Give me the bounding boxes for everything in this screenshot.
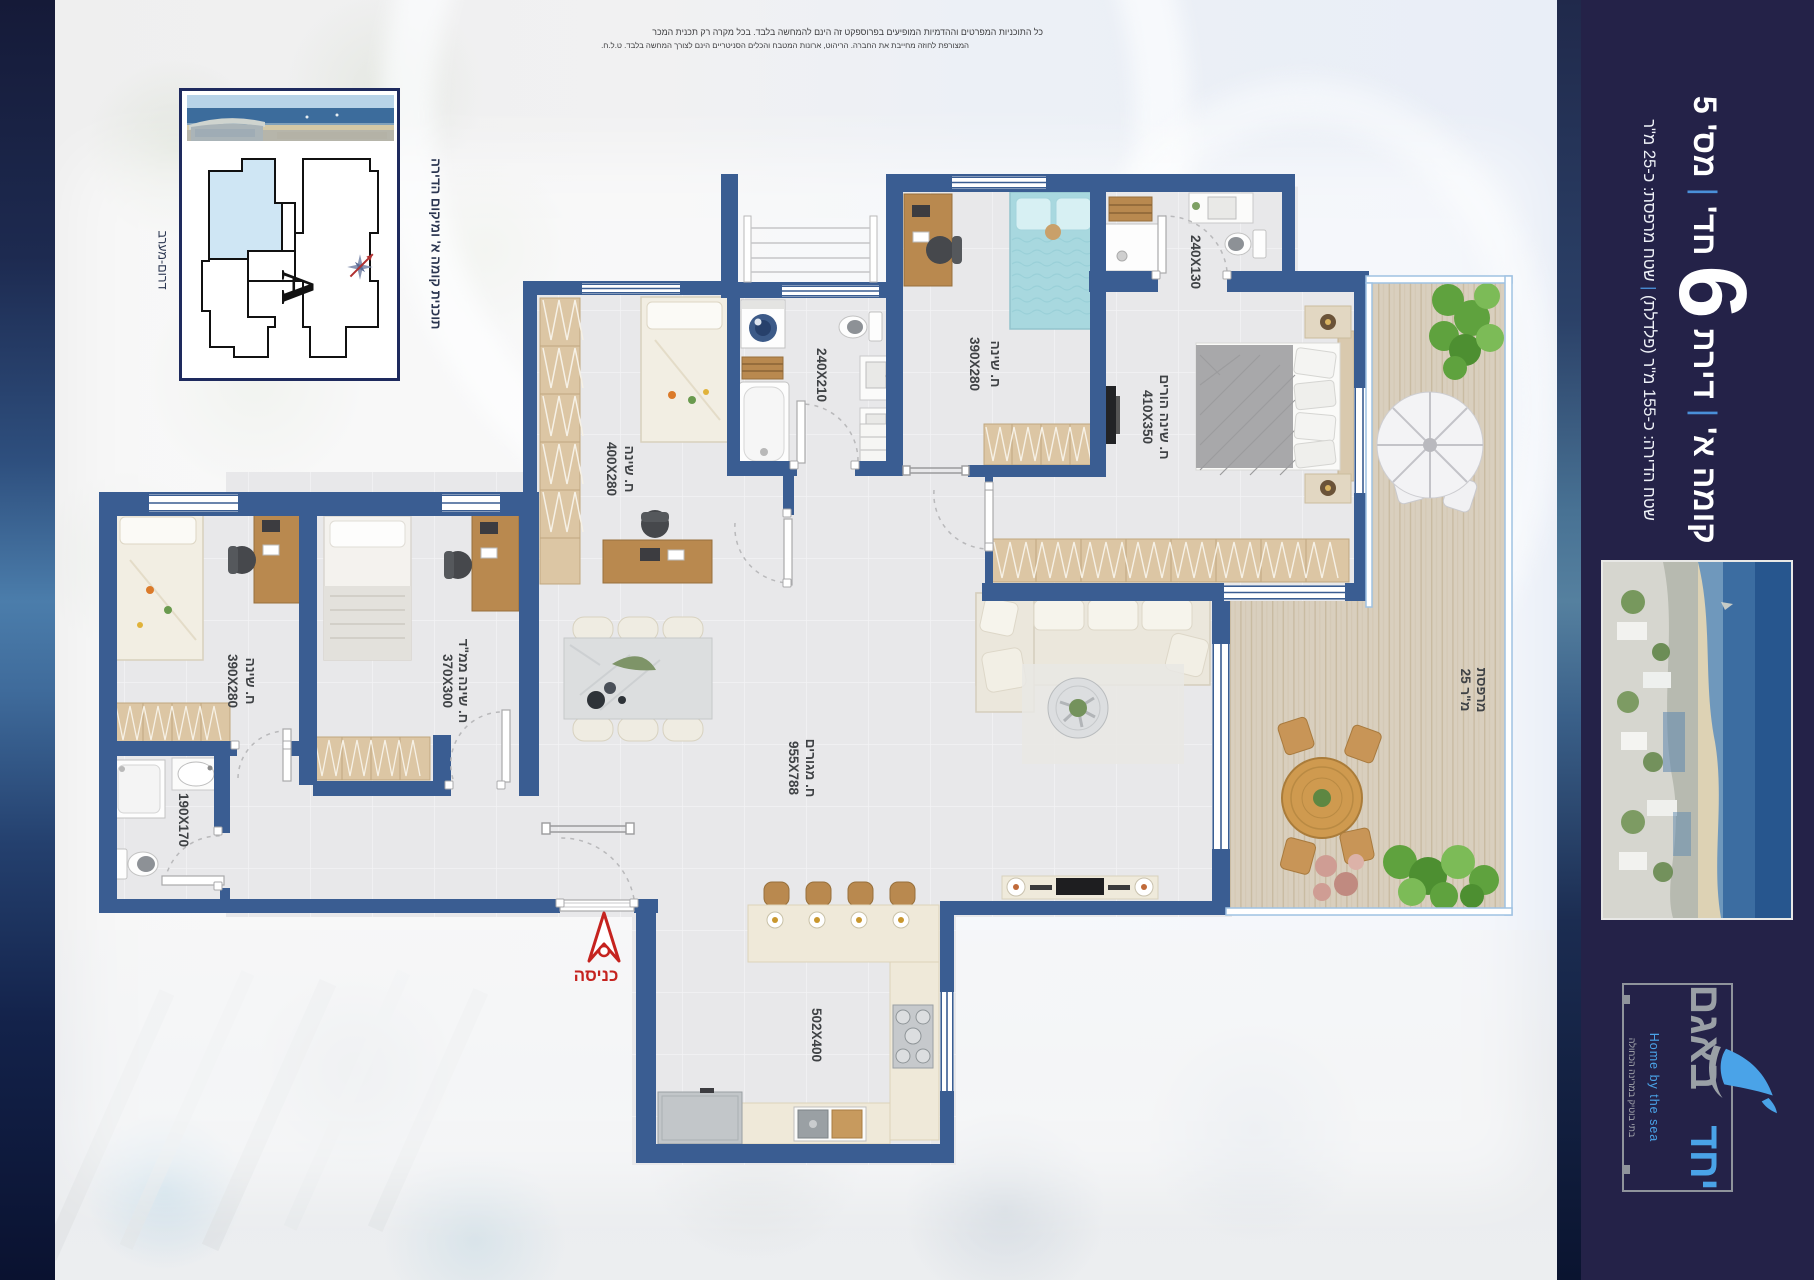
- svg-text:410X350: 410X350: [1140, 390, 1155, 444]
- svg-text:240X130: 240X130: [1188, 235, 1203, 289]
- svg-text:390X280: 390X280: [225, 654, 240, 708]
- svg-text:400X280: 400X280: [604, 442, 619, 496]
- svg-text:ח. שינה: ח. שינה: [243, 658, 258, 705]
- svg-text:ח. שינה ממ"ד: ח. שינה ממ"ד: [456, 639, 471, 723]
- svg-text:190X170: 190X170: [176, 793, 191, 847]
- svg-text:מרפסת: מרפסת: [1474, 668, 1489, 713]
- svg-text:כניסה: כניסה: [574, 966, 619, 985]
- svg-text:25 מ"ר: 25 מ"ר: [1458, 669, 1473, 712]
- svg-text:240X210: 240X210: [814, 348, 829, 402]
- svg-text:ח. מגורים: ח. מגורים: [803, 739, 818, 798]
- svg-text:370X300: 370X300: [440, 654, 455, 708]
- svg-text:502X400: 502X400: [809, 1008, 824, 1062]
- svg-text:955X788: 955X788: [786, 741, 801, 796]
- svg-text:ח. שינה: ח. שינה: [988, 341, 1003, 388]
- svg-text:ח. שינה הורים: ח. שינה הורים: [1157, 374, 1172, 459]
- svg-text:ח. שינה: ח. שינה: [622, 446, 637, 493]
- svg-text:390X280: 390X280: [967, 337, 982, 391]
